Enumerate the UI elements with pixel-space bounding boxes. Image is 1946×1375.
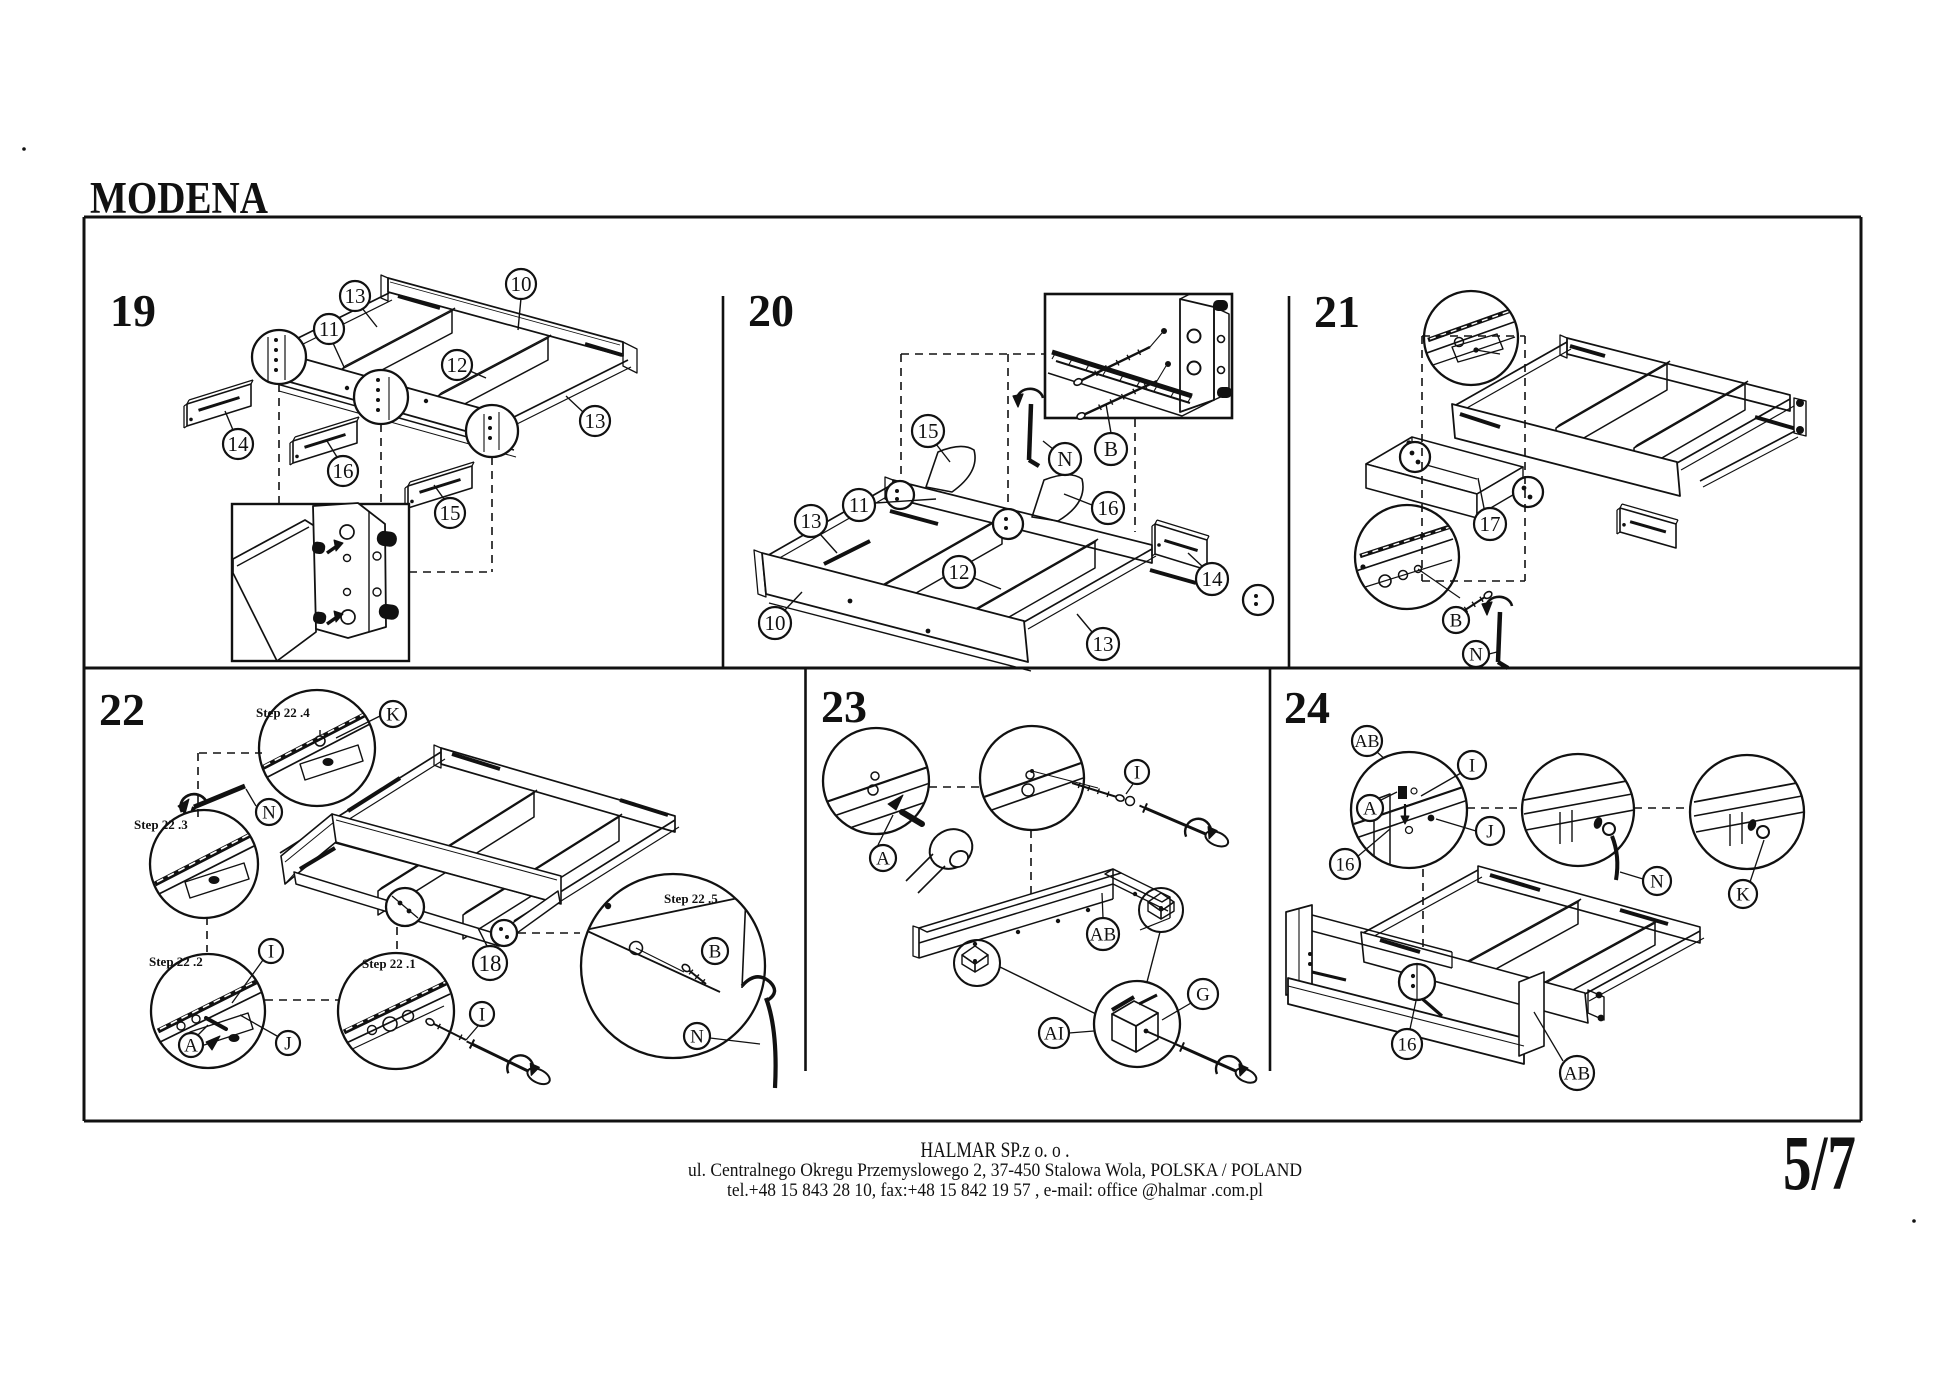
svg-text:24: 24 — [1284, 682, 1330, 733]
svg-text:23: 23 — [821, 681, 867, 732]
svg-text:G: G — [1196, 985, 1210, 1006]
svg-text:I: I — [479, 1005, 485, 1026]
svg-text:HALMAR SP.z o. o .: HALMAR SP.z o. o . — [921, 1137, 1070, 1162]
svg-text:21: 21 — [1314, 286, 1360, 337]
svg-text:K: K — [1736, 885, 1750, 906]
svg-text:N: N — [262, 803, 276, 824]
svg-text:Step 22 .2: Step 22 .2 — [149, 954, 203, 969]
svg-text:14: 14 — [228, 432, 250, 456]
svg-text:19: 19 — [110, 285, 156, 336]
svg-text:B: B — [1104, 437, 1118, 461]
svg-text:16: 16 — [1098, 496, 1119, 520]
svg-text:16: 16 — [1398, 1035, 1417, 1056]
svg-text:10: 10 — [511, 272, 532, 296]
svg-text:11: 11 — [319, 317, 339, 341]
svg-text:10: 10 — [765, 611, 786, 635]
svg-text:15: 15 — [440, 501, 461, 525]
svg-text:12: 12 — [447, 353, 468, 377]
svg-text:17: 17 — [1480, 512, 1501, 536]
svg-text:Step 22 .5: Step 22 .5 — [664, 891, 718, 906]
svg-text:N: N — [1057, 447, 1072, 471]
svg-text:A: A — [1363, 799, 1377, 820]
svg-text:12: 12 — [949, 560, 970, 584]
svg-text:N: N — [1469, 645, 1483, 666]
svg-text:15: 15 — [918, 419, 939, 443]
svg-text:Step 22 .1: Step 22 .1 — [362, 956, 416, 971]
svg-text:AB: AB — [1354, 731, 1379, 751]
svg-text:A: A — [876, 849, 890, 870]
svg-text:Step 22 .3: Step 22 .3 — [134, 817, 188, 832]
svg-text:AB: AB — [1090, 925, 1116, 946]
svg-text:Step 22 .4: Step 22 .4 — [256, 705, 310, 720]
svg-text:I: I — [1469, 756, 1475, 777]
svg-text:I: I — [268, 942, 274, 963]
svg-text:tel.+48 15 843 28 10, fax:+48: tel.+48 15 843 28 10, fax:+48 15 842 19 … — [727, 1180, 1263, 1201]
svg-text:22: 22 — [99, 684, 145, 735]
svg-text:16: 16 — [333, 459, 354, 483]
svg-text:18: 18 — [479, 951, 502, 976]
svg-text:B: B — [1450, 611, 1463, 632]
svg-text:B: B — [709, 942, 722, 963]
svg-text:13: 13 — [585, 409, 606, 433]
svg-text:11: 11 — [849, 493, 869, 517]
svg-text:13: 13 — [1093, 632, 1114, 656]
svg-text:13: 13 — [801, 509, 822, 533]
svg-text:5/7: 5/7 — [1783, 1119, 1856, 1206]
svg-text:N: N — [690, 1027, 704, 1048]
svg-text:K: K — [386, 705, 400, 726]
svg-text:J: J — [284, 1034, 291, 1055]
svg-text:N: N — [1650, 872, 1664, 893]
svg-text:16: 16 — [1336, 855, 1355, 876]
svg-text:J: J — [1486, 822, 1493, 843]
svg-text:AI: AI — [1044, 1024, 1064, 1045]
svg-text:ul. Centralnego Okregu Przemys: ul. Centralnego Okregu Przemyslowego 2, … — [688, 1160, 1302, 1181]
svg-text:AB: AB — [1564, 1064, 1590, 1085]
svg-text:20: 20 — [748, 285, 794, 336]
svg-text:13: 13 — [345, 284, 366, 308]
svg-text:I: I — [1134, 763, 1140, 784]
svg-text:14: 14 — [1202, 567, 1224, 591]
svg-text:A: A — [184, 1036, 198, 1057]
